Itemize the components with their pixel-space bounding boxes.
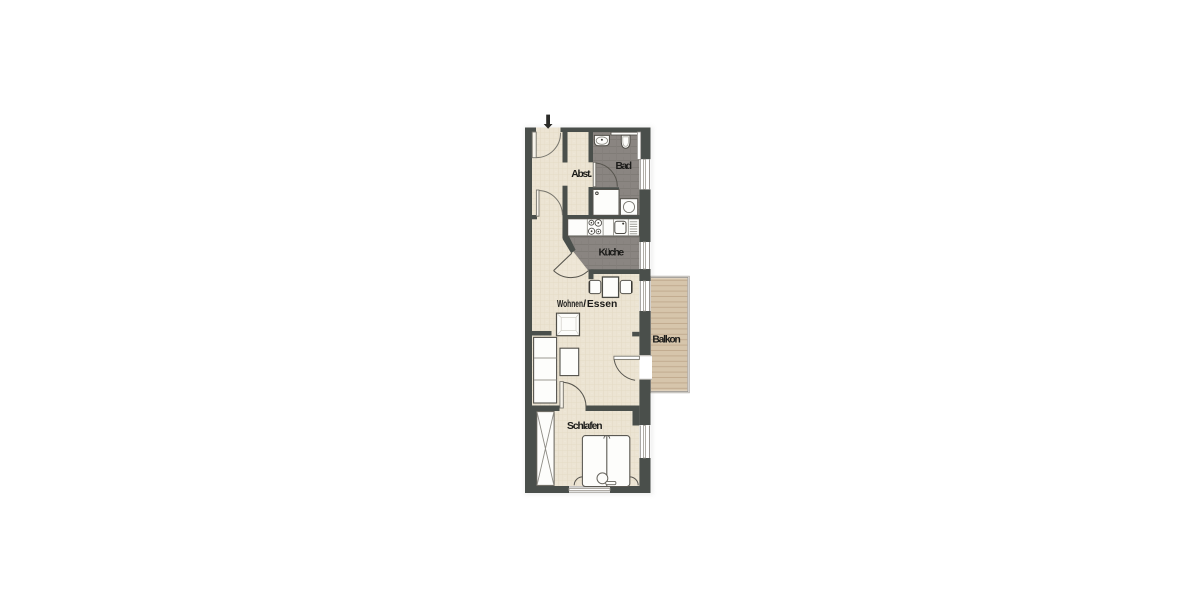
svg-text:Essen: Essen [587,299,618,310]
svg-text:Wohnen: Wohnen [557,299,583,310]
svg-text:Balkon: Balkon [652,335,681,346]
svg-text:Bad: Bad [616,161,633,172]
svg-text:Küche: Küche [599,247,625,258]
svg-text:Schlafen: Schlafen [567,421,603,432]
svg-text:/: / [583,299,586,310]
svg-text:Abst.: Abst. [571,169,592,180]
